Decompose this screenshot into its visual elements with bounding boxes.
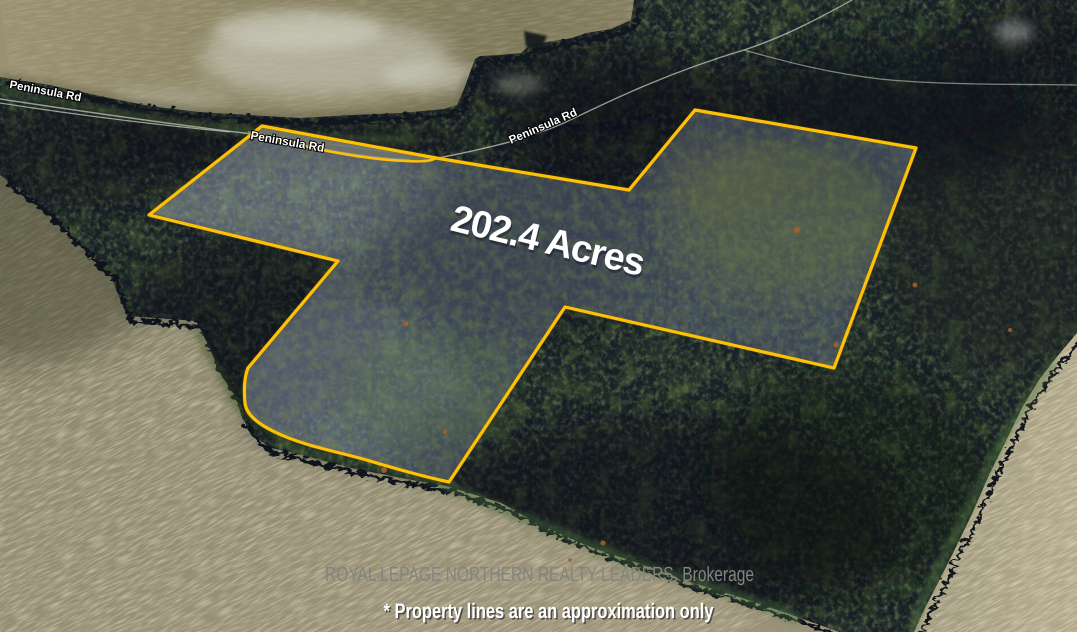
svg-text:* Property lines are an approx: * Property lines are an approximation on… [384,600,714,623]
svg-text:ROYAL LEPAGE NORTHERN REALTY L: ROYAL LEPAGE NORTHERN REALTY LEADERS, Br… [325,563,754,586]
